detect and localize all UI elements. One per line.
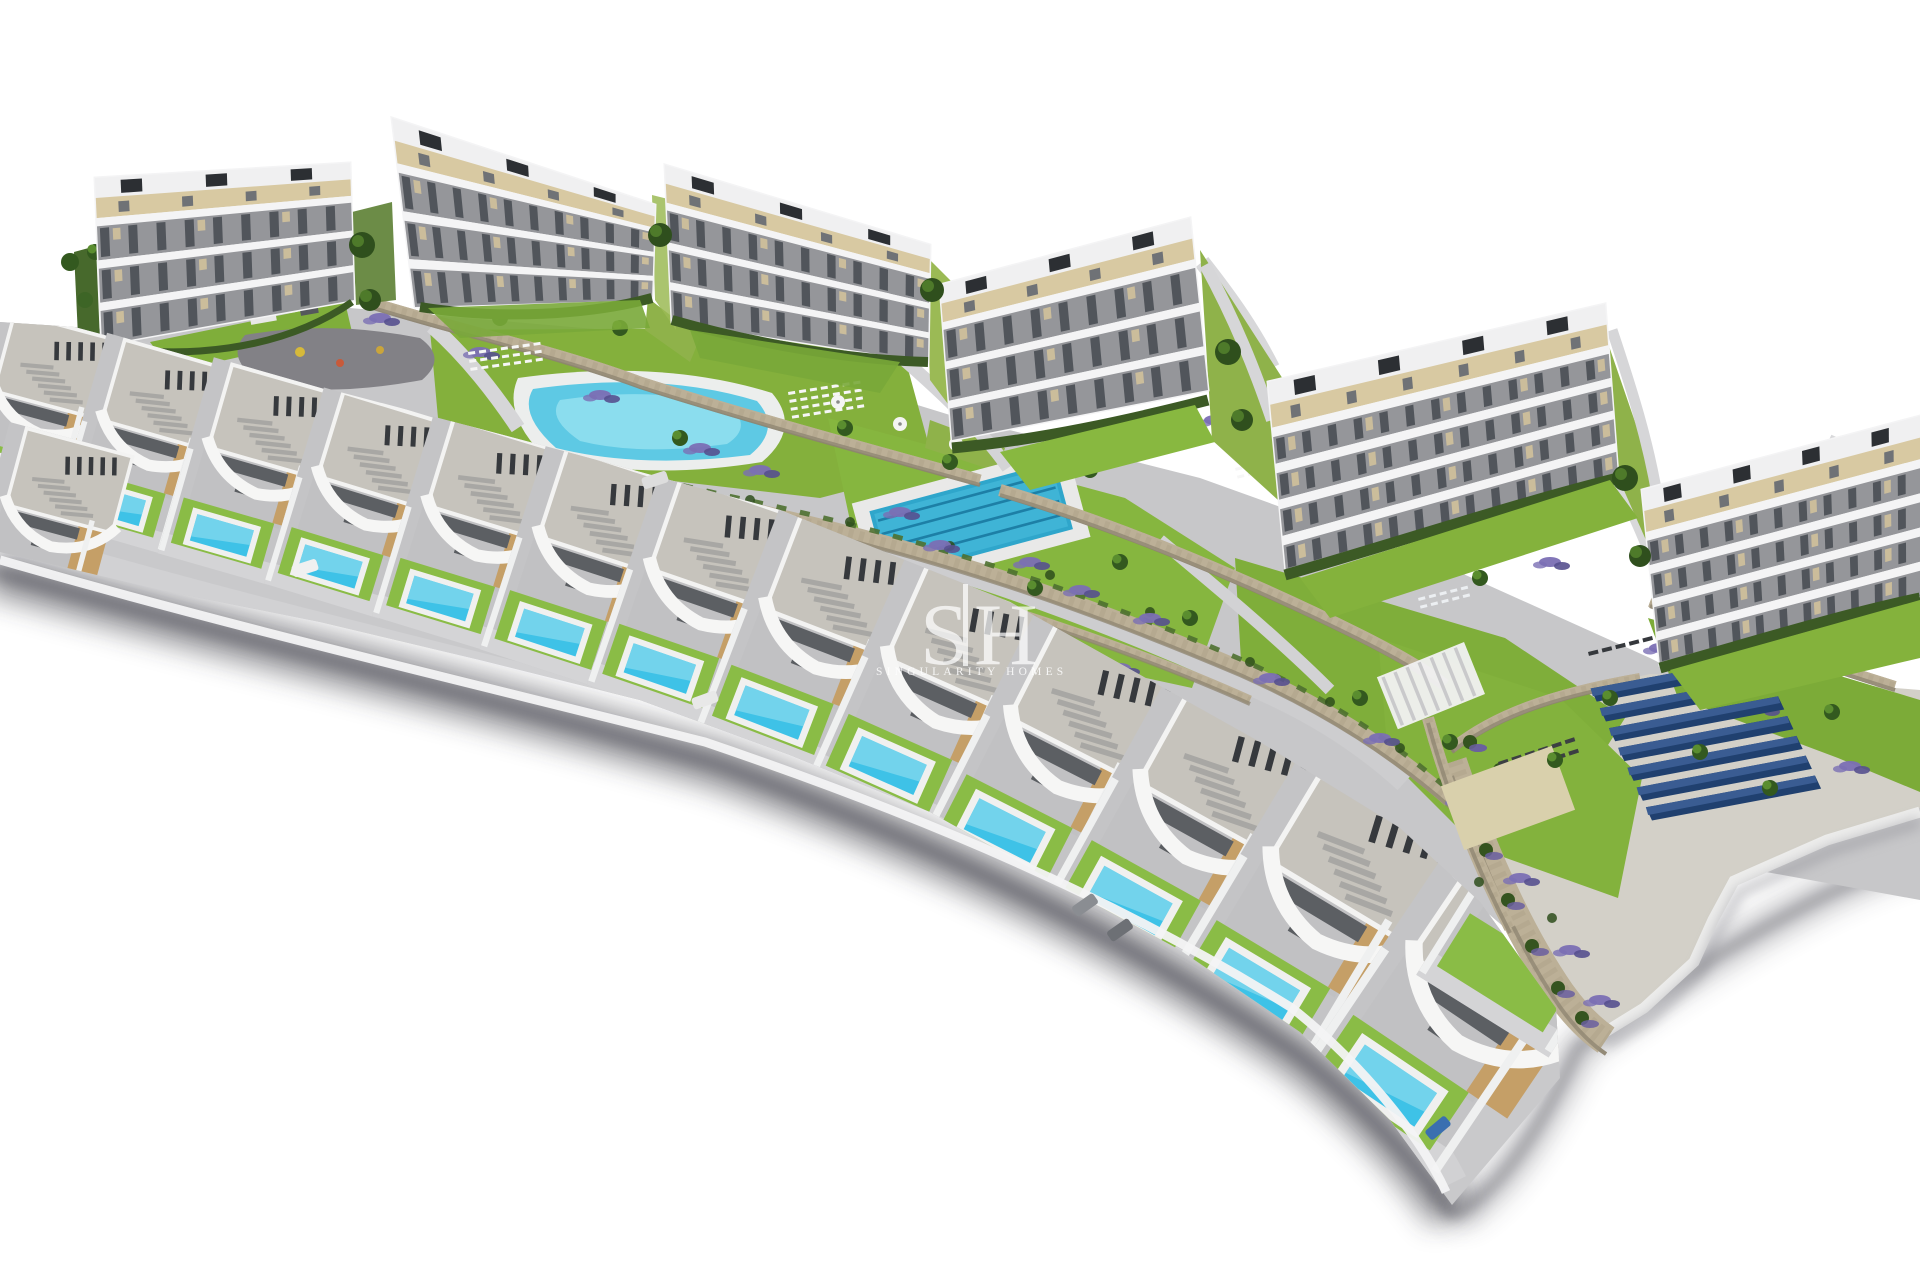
svg-text:SINGULARITY HOMES: SINGULARITY HOMES	[876, 666, 1067, 678]
